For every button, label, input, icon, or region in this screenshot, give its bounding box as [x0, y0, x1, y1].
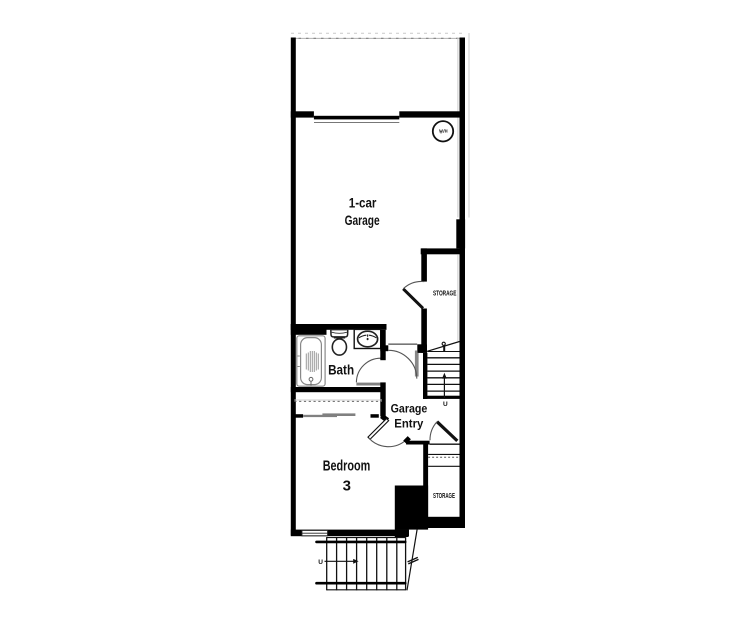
svg-text:3: 3	[343, 478, 351, 495]
svg-text:Garage: Garage	[345, 213, 380, 228]
svg-text:Bath: Bath	[328, 361, 354, 377]
svg-text:Bedroom: Bedroom	[323, 458, 371, 475]
svg-text:U: U	[318, 559, 323, 566]
svg-text:STORAGE: STORAGE	[433, 493, 455, 500]
svg-text:STORAGE: STORAGE	[433, 291, 457, 298]
svg-text:Entry: Entry	[394, 418, 424, 430]
svg-text:1-car: 1-car	[349, 196, 377, 211]
svg-text:Garage: Garage	[391, 403, 428, 415]
svg-text:U: U	[443, 401, 448, 408]
